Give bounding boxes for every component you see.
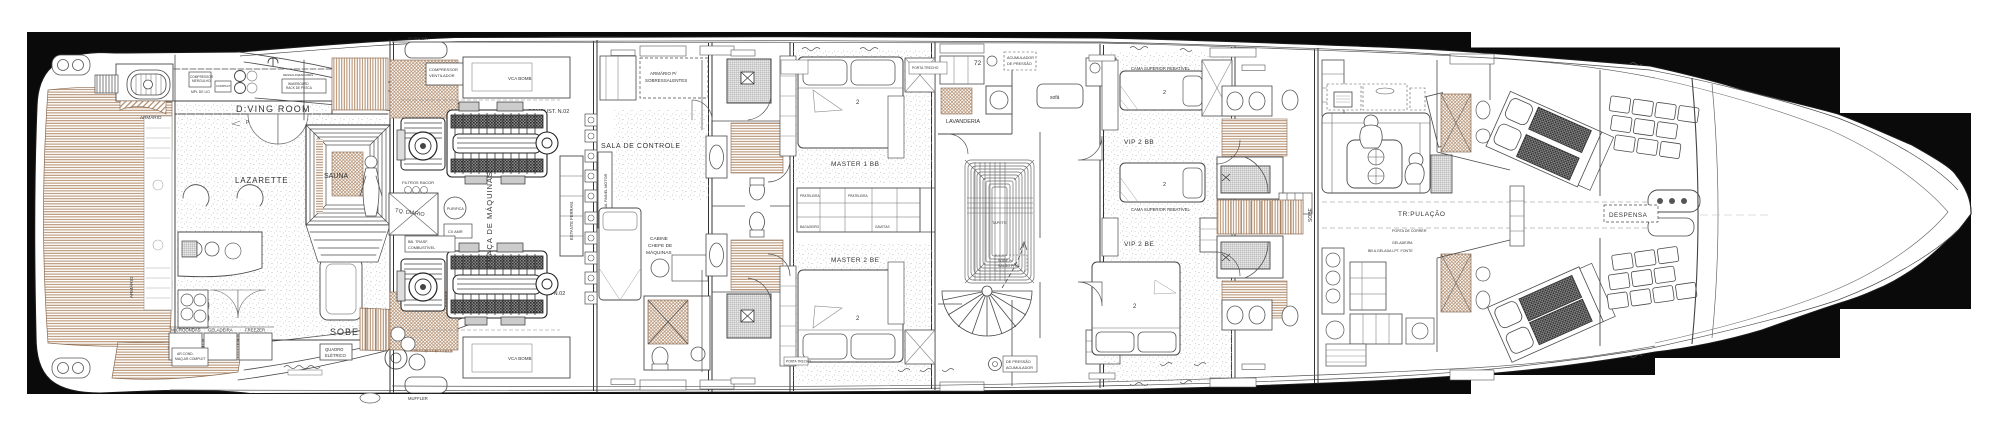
svg-text:CX AMR: CX AMR bbox=[448, 230, 463, 234]
svg-text:SOBE: SOBE bbox=[1308, 207, 1314, 222]
svg-text:MICROONDAS: MICROONDAS bbox=[171, 328, 201, 333]
svg-text:RACK DE PESCA: RACK DE PESCA bbox=[286, 86, 313, 90]
svg-text:CAMA SUPERIOR REBATÍVEL: CAMA SUPERIOR REBATÍVEL bbox=[1131, 66, 1190, 71]
svg-text:SALÃO PRAL: SALÃO PRAL bbox=[998, 263, 1020, 268]
svg-text:ACUMULADOR: ACUMULADOR bbox=[1007, 56, 1034, 60]
svg-text:ELÉTRICO: ELÉTRICO bbox=[325, 353, 347, 358]
svg-text:COMBUSTÍVEL: COMBUSTÍVEL bbox=[408, 246, 435, 250]
svg-text:D:VING ROOM: D:VING ROOM bbox=[236, 104, 311, 114]
svg-text:PRATELEIRA: PRATELEIRA bbox=[800, 194, 820, 198]
svg-text:COMPACT: COMPACT bbox=[216, 84, 231, 88]
svg-text:MASTER 1 BB: MASTER 1 BB bbox=[831, 161, 879, 168]
svg-text:COMPRESSOR: COMPRESSOR bbox=[429, 67, 458, 72]
svg-text:BAGAGEIRO: BAGAGEIRO bbox=[800, 225, 820, 229]
svg-text:2: 2 bbox=[1163, 182, 1166, 188]
svg-text:VCA BOMB: VCA BOMB bbox=[508, 356, 532, 361]
svg-text:SOBE P/: SOBE P/ bbox=[998, 259, 1012, 263]
svg-text:DE PRESSÃO: DE PRESSÃO bbox=[1007, 61, 1032, 66]
svg-text:LAVANDERIA: LAVANDERIA bbox=[946, 119, 980, 125]
svg-text:BB. TRASF.: BB. TRASF. bbox=[408, 240, 428, 244]
svg-text:PORTA DE CORRER: PORTA DE CORRER bbox=[1392, 229, 1427, 233]
svg-text:VIP 2 BE: VIP 2 BE bbox=[1124, 241, 1154, 248]
svg-text:ARMÁRIO: ARMÁRIO bbox=[140, 114, 162, 120]
svg-text:MUFFLER: MUFFLER bbox=[408, 36, 428, 41]
svg-text:BB A.GELADA LPT. FONTE: BB A.GELADA LPT. FONTE bbox=[1368, 249, 1413, 253]
svg-text:CAMA SUPERIOR REBATÍVEL: CAMA SUPERIOR REBATÍVEL bbox=[1131, 207, 1190, 212]
svg-text:GELADEIRA: GELADEIRA bbox=[208, 328, 233, 333]
svg-text:PORTA TRECHO: PORTA TRECHO bbox=[786, 360, 811, 364]
svg-text:CHEFE DE: CHEFE DE bbox=[648, 243, 672, 249]
svg-text:DESSALINIZADORES: DESSALINIZADORES bbox=[283, 73, 313, 77]
svg-text:CABINE: CABINE bbox=[650, 236, 668, 242]
svg-text:VENTILADOR: VENTILADOR bbox=[429, 73, 455, 78]
svg-text:ARMÁRIO P/: ARMÁRIO P/ bbox=[650, 70, 677, 76]
svg-text:SOBE: SOBE bbox=[330, 327, 359, 337]
svg-text:DESPENSA: DESPENSA bbox=[1609, 212, 1648, 219]
svg-text:FREEZER: FREEZER bbox=[245, 328, 265, 333]
svg-text:MAQ.AR.COMPLET: MAQ.AR.COMPLET bbox=[175, 357, 206, 361]
svg-text:MERGULHO: MERGULHO bbox=[192, 79, 211, 83]
svg-text:QUADRO: QUADRO bbox=[325, 347, 344, 352]
svg-text:sofá: sofá bbox=[1050, 95, 1060, 101]
svg-text:PRATELEIRA: PRATELEIRA bbox=[848, 194, 868, 198]
svg-text:SAUNA: SAUNA bbox=[324, 173, 348, 180]
svg-text:FILTROS RACOR: FILTROS RACOR bbox=[402, 180, 434, 185]
svg-text:PRAÇA DE MÁQUINAS: PRAÇA DE MÁQUINAS bbox=[485, 171, 494, 268]
svg-text:SOBRESSALENTES: SOBRESSALENTES bbox=[645, 78, 687, 83]
svg-text:PORTA TRECHO: PORTA TRECHO bbox=[912, 66, 939, 70]
svg-text:ESTANTE FERRAM.: ESTANTE FERRAM. bbox=[569, 201, 574, 240]
svg-text:AR COND.: AR COND. bbox=[177, 352, 194, 356]
svg-text:2: 2 bbox=[1163, 90, 1166, 96]
svg-text:ACUMULADOR: ACUMULADOR bbox=[1006, 366, 1033, 370]
svg-text:MÁQUINAS: MÁQUINAS bbox=[646, 249, 672, 256]
svg-text:TR:PULAÇÃO: TR:PULAÇÃO bbox=[1398, 209, 1446, 218]
svg-text:MPL DE LIO: MPL DE LIO bbox=[191, 90, 210, 94]
svg-text:VCA BOMB: VCA BOMB bbox=[508, 76, 532, 81]
svg-text:MUFFLER: MUFFLER bbox=[408, 396, 428, 401]
svg-text:GELADEIRA: GELADEIRA bbox=[1392, 241, 1413, 245]
svg-text:VIP 2 BB: VIP 2 BB bbox=[1124, 139, 1154, 146]
svg-text:72: 72 bbox=[974, 60, 982, 67]
svg-text:MASTER 2 BE: MASTER 2 BE bbox=[831, 257, 880, 264]
svg-text:ARMÁRIO: ARMÁRIO bbox=[128, 276, 134, 298]
svg-text:GAVETAS: GAVETAS bbox=[875, 225, 890, 229]
svg-text:DE PRESSÃO: DE PRESSÃO bbox=[1006, 359, 1031, 364]
svg-text:LAZARETTE: LAZARETTE bbox=[235, 176, 288, 185]
svg-text:PURIFICA: PURIFICA bbox=[447, 207, 464, 211]
